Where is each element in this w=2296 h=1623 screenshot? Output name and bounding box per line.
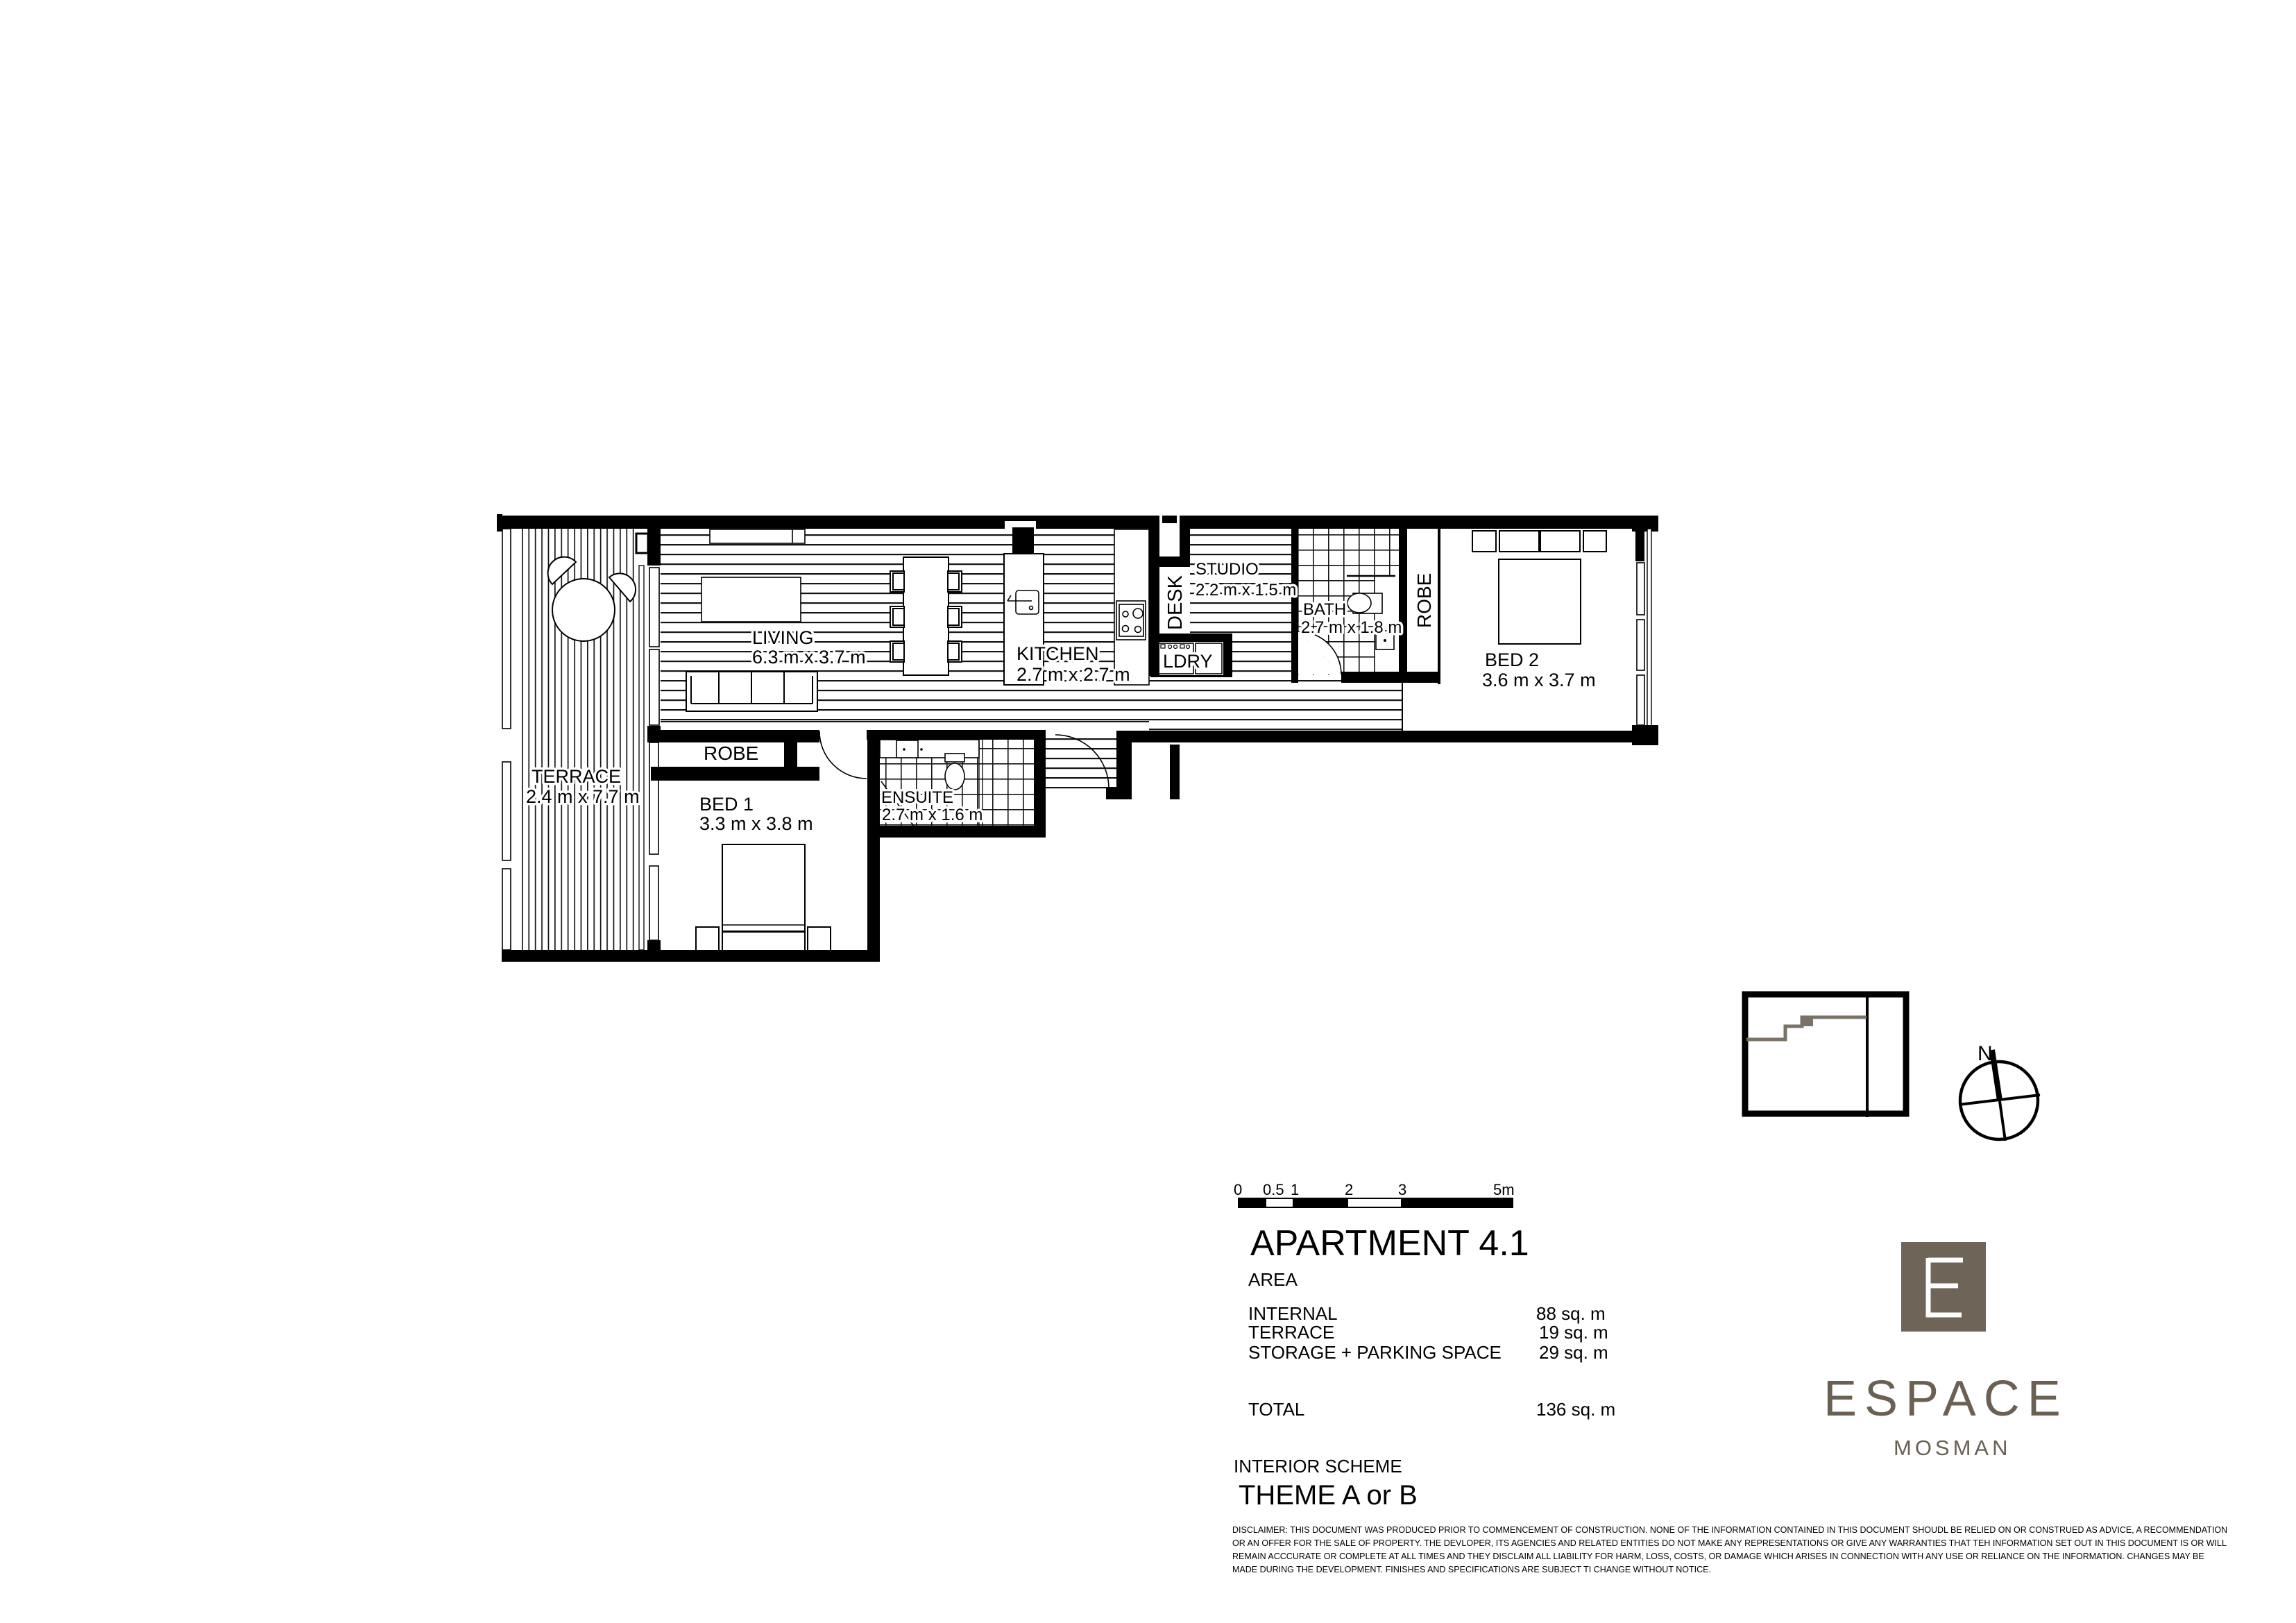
svg-text:BATH: BATH: [1303, 600, 1346, 619]
svg-text:3: 3: [1398, 1181, 1406, 1198]
svg-text:BED 1: BED 1: [699, 794, 754, 815]
svg-text:DESK: DESK: [1164, 575, 1187, 630]
svg-text:3.3 m x 3.8 m: 3.3 m x 3.8 m: [699, 813, 813, 834]
svg-text:136 sq. m: 136 sq. m: [1536, 1399, 1615, 1420]
svg-text:ESPACE: ESPACE: [1823, 1371, 2068, 1427]
svg-text:MOSMAN: MOSMAN: [1894, 1436, 2012, 1460]
svg-text:DISCLAIMER: THIS DOCUMENT WAS: DISCLAIMER: THIS DOCUMENT WAS PRODUCED P…: [1232, 1525, 2227, 1535]
svg-text:LDRY: LDRY: [1163, 651, 1213, 672]
svg-text:5m: 5m: [1493, 1181, 1515, 1198]
svg-text:STORAGE + PARKING SPACE: STORAGE + PARKING SPACE: [1248, 1342, 1502, 1363]
svg-text:88 sq. m: 88 sq. m: [1536, 1303, 1606, 1324]
svg-text:2.7 m x 1.6 m: 2.7 m x 1.6 m: [882, 806, 983, 824]
svg-text:2.2 m x 1.5 m: 2.2 m x 1.5 m: [1196, 581, 1296, 600]
svg-text:1: 1: [1291, 1181, 1299, 1198]
svg-text:6.3 m x 3.7 m: 6.3 m x 3.7 m: [752, 647, 866, 668]
svg-text:LIVING: LIVING: [752, 627, 814, 648]
svg-text:REMAIN ACCCURATE OR COMPLETE A: REMAIN ACCCURATE OR COMPLETE AT ALL TIME…: [1232, 1552, 2204, 1561]
svg-text:2.7 m x 2.7 m: 2.7 m x 2.7 m: [1017, 664, 1130, 685]
svg-text:2.4 m x 7.7 m: 2.4 m x 7.7 m: [526, 786, 640, 807]
svg-text:0: 0: [1234, 1181, 1242, 1198]
svg-text:2: 2: [1345, 1181, 1353, 1198]
svg-text:APARTMENT 4.1: APARTMENT 4.1: [1250, 1223, 1529, 1264]
svg-text:TOTAL: TOTAL: [1248, 1399, 1304, 1420]
svg-text:OR AN OFFER FOR THE SALE OF PR: OR AN OFFER FOR THE SALE OF PROPERTY. TH…: [1232, 1538, 2227, 1548]
svg-text:KITCHEN: KITCHEN: [1017, 643, 1099, 664]
svg-text:MADE DURING THE DEVELOPMENT. F: MADE DURING THE DEVELOPMENT. FINISHES AN…: [1232, 1565, 1711, 1574]
svg-text:TERRACE: TERRACE: [1248, 1322, 1334, 1343]
svg-text:3.6 m x 3.7 m: 3.6 m x 3.7 m: [1482, 670, 1596, 690]
svg-text:ROBE: ROBE: [1413, 573, 1435, 628]
svg-text:BED 2: BED 2: [1485, 649, 1539, 670]
svg-text:INTERNAL: INTERNAL: [1248, 1303, 1338, 1324]
svg-text:29 sq. m: 29 sq. m: [1539, 1342, 1608, 1363]
svg-text:TERRACE: TERRACE: [532, 766, 621, 787]
svg-text:ENSUITE: ENSUITE: [881, 788, 953, 807]
svg-text:19 sq. m: 19 sq. m: [1539, 1322, 1608, 1343]
svg-text:INTERIOR SCHEME: INTERIOR SCHEME: [1234, 1456, 1402, 1477]
svg-text:THEME A or B: THEME A or B: [1239, 1480, 1418, 1511]
svg-text:0.5: 0.5: [1263, 1181, 1284, 1198]
svg-text:AREA: AREA: [1248, 1269, 1298, 1290]
svg-text:ROBE: ROBE: [704, 742, 758, 764]
svg-text:2.7 m x 1.8 m: 2.7 m x 1.8 m: [1301, 618, 1402, 637]
svg-text:STUDIO: STUDIO: [1196, 560, 1259, 579]
